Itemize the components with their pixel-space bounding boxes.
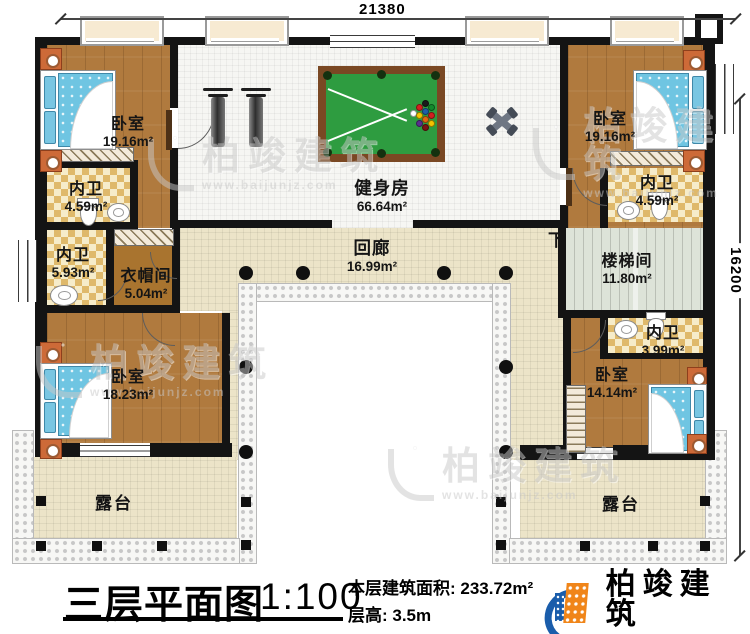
column-post <box>499 445 513 459</box>
room-label-bedroom-br: 卧室14.14m² <box>587 366 637 401</box>
square-post <box>36 541 46 551</box>
company-logo-icon <box>545 581 598 634</box>
terrace-left-label: 露台 <box>95 489 133 514</box>
sink <box>50 285 78 306</box>
wall-bedbl-right <box>222 313 230 445</box>
wall-bedtl-gym-b <box>170 148 178 228</box>
column-post <box>499 266 513 280</box>
wall-bathtl-right <box>130 160 138 230</box>
floor-area-text: 本层建筑面积: 233.72m² <box>348 574 533 599</box>
room-label-bedroom-tl: 卧室19.16m² <box>103 115 153 150</box>
column-post <box>437 266 451 280</box>
room-label-bedroom-bl: 卧室18.23m² <box>103 368 153 403</box>
terrace-left-railing-bottom <box>12 538 240 564</box>
column-post <box>239 360 253 374</box>
column-post <box>296 266 310 280</box>
company-logo: 柏竣建筑 www.baijunjz.com <box>545 570 750 634</box>
floor-plan-canvas: 柏竣建筑www.baijunjz.com 柏竣建筑www.baijunjz.co… <box>0 0 750 634</box>
room-label-bath-tl: 内卫4.59m² <box>65 180 108 215</box>
bed <box>633 70 707 150</box>
nightstand <box>40 342 62 364</box>
nightstand <box>683 150 705 172</box>
exercise-machine <box>211 97 225 147</box>
square-post <box>241 497 251 507</box>
stairs-down-label: 下 <box>548 226 565 251</box>
room-label-stairwell: 楼梯间11.80m² <box>601 252 652 287</box>
dimension-line-right <box>739 98 741 556</box>
terrace-right-railing-bottom <box>509 538 727 564</box>
floor-height-text: 层高: 3.5m <box>348 601 431 626</box>
nightstand <box>40 48 62 70</box>
terrace-right-label: 露台 <box>602 490 640 515</box>
window-left-wing-bottom <box>80 445 150 457</box>
window-under-bay <box>211 38 279 44</box>
window-under-bay <box>616 38 674 44</box>
corridor-left-patch <box>180 295 238 311</box>
window-under-bay <box>86 38 154 44</box>
ladder-hatch-bedroom-br <box>566 385 586 453</box>
nightstand <box>687 434 707 454</box>
square-post <box>496 540 506 550</box>
railing-left <box>238 283 257 564</box>
room-label-bath-tr: 内卫4.59m² <box>636 174 679 209</box>
square-post <box>648 541 658 551</box>
wall-gym-south-b <box>413 220 565 228</box>
room-label-corridor: 回廊16.99m² <box>347 238 397 275</box>
plan-title: 三层平面图 <box>64 574 264 630</box>
room-label-cloakroom: 衣帽间5.04m² <box>120 267 171 302</box>
window-bay-left <box>18 240 37 302</box>
nightstand <box>40 150 62 172</box>
square-post <box>580 541 590 551</box>
sink <box>614 320 638 339</box>
exercise-machine <box>249 97 263 147</box>
billiard-table <box>318 66 445 162</box>
square-post <box>496 497 506 507</box>
door-leaf <box>566 168 572 206</box>
window-bay-right <box>715 64 734 134</box>
room-label-bath-mr: 内卫3.99m² <box>642 324 685 359</box>
room-label-bath-ml: 内卫5.93m² <box>52 246 95 281</box>
sink <box>107 203 130 222</box>
corridor-right-arm <box>509 295 565 460</box>
column-post <box>239 445 253 459</box>
square-post <box>700 496 710 506</box>
room-label-bedroom-tr: 卧室19.16m² <box>585 110 635 145</box>
railing-top <box>238 283 511 302</box>
courtyard-void <box>255 300 492 562</box>
wall-gym-south-a <box>178 220 332 228</box>
dimension-right-value: 16200 <box>727 243 744 298</box>
company-name: 柏竣建筑 <box>606 570 750 630</box>
column-post <box>499 360 513 374</box>
wall-bedtr-gym-a <box>560 45 568 168</box>
terrace-left-floor <box>32 457 237 538</box>
door-leaf <box>166 110 172 150</box>
square-post <box>157 541 167 551</box>
dimension-line-top <box>60 18 736 20</box>
nightstand <box>683 50 705 72</box>
dimension-top-value: 21380 <box>355 1 410 18</box>
square-post <box>36 496 46 506</box>
window-top-flush <box>330 35 415 48</box>
window-under-bay <box>471 38 539 44</box>
nightstand <box>40 439 62 459</box>
square-post <box>241 540 251 550</box>
square-post <box>92 541 102 551</box>
wall-stair-bed <box>558 310 715 318</box>
exercise-machine-bar <box>203 88 233 91</box>
bed <box>40 363 112 439</box>
railing-right <box>492 283 511 564</box>
wall-left-wing-bottom-b <box>150 443 232 457</box>
closet-hatch-cloakroom <box>114 229 174 246</box>
exercise-machine-bar <box>241 88 271 91</box>
column-post <box>239 266 253 280</box>
wall-bedtl-gym-a <box>170 45 178 108</box>
square-post <box>700 541 710 551</box>
room-label-gym: 健身房66.64m² <box>354 178 410 215</box>
